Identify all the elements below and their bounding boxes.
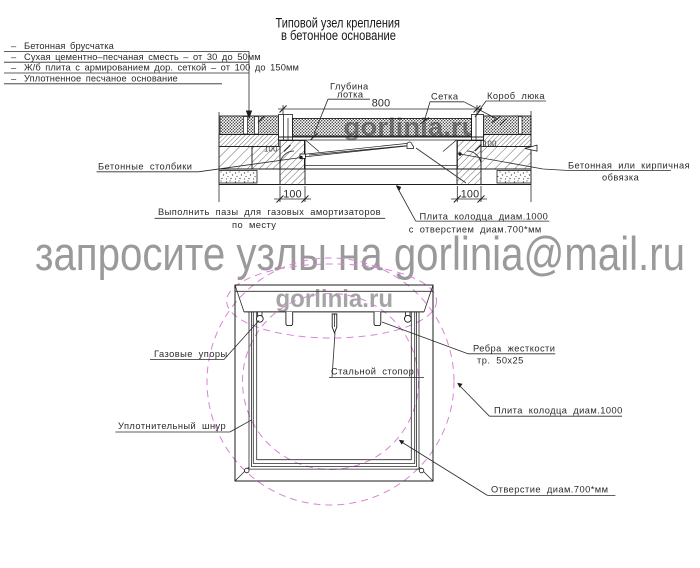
svg-text:Выполнить пазы для газовых амо: Выполнить пазы для газовых амортизаторов	[158, 207, 381, 217]
svg-text:Бетонная брусчатка: Бетонная брусчатка	[24, 41, 115, 51]
svg-text:в бетонное основание: в бетонное основание	[281, 28, 396, 43]
svg-text:Уплотнительный шнур: Уплотнительный шнур	[118, 421, 226, 431]
svg-text:лотка: лотка	[337, 90, 364, 100]
svg-text:100: 100	[461, 189, 480, 201]
svg-text:gorlinia.ru: gorlinia.ru	[276, 285, 394, 313]
svg-text:Отверстие диам.700*мм: Отверстие диам.700*мм	[491, 485, 608, 495]
svg-text:800: 800	[372, 98, 391, 110]
svg-text:Бетонная или кирпичная: Бетонная или кирпичная	[568, 161, 690, 171]
svg-text:100: 100	[264, 145, 278, 154]
svg-text:Сухая цементно–песчаная сместь: Сухая цементно–песчаная сместь – от 30 д…	[24, 52, 261, 62]
svg-text:обвязка: обвязка	[602, 173, 640, 183]
svg-text:Уплотненное песчаное основание: Уплотненное песчаное основание	[24, 73, 178, 83]
svg-text:тр. 50х25: тр. 50х25	[477, 356, 524, 366]
svg-text:Плита колодца диам.1000: Плита колодца диам.1000	[420, 212, 549, 222]
svg-text:100: 100	[483, 140, 497, 149]
svg-text:–: –	[11, 41, 17, 51]
svg-text:–: –	[11, 52, 17, 62]
svg-text:Сетка: Сетка	[431, 92, 459, 102]
svg-text:Короб люка: Короб люка	[487, 91, 545, 101]
svg-text:Плита колодца диам.1000: Плита колодца диам.1000	[494, 406, 623, 416]
svg-text:100: 100	[283, 189, 302, 201]
svg-text:Газовые упоры: Газовые упоры	[154, 349, 228, 359]
svg-text:Стальной стопор: Стальной стопор	[331, 367, 414, 377]
svg-text:Ж/б плита с армированием дор.: Ж/б плита с армированием дор. сеткой – о…	[24, 63, 299, 73]
svg-text:Бетонные столбики: Бетонные столбики	[98, 162, 192, 172]
svg-text:Ребра жесткости: Ребра жесткости	[473, 344, 555, 354]
svg-text:–: –	[11, 63, 17, 73]
svg-text:–: –	[11, 73, 17, 83]
svg-text:запросите узлы на gorlinia@mai: запросите узлы на gorlinia@mail.ru	[35, 227, 685, 280]
